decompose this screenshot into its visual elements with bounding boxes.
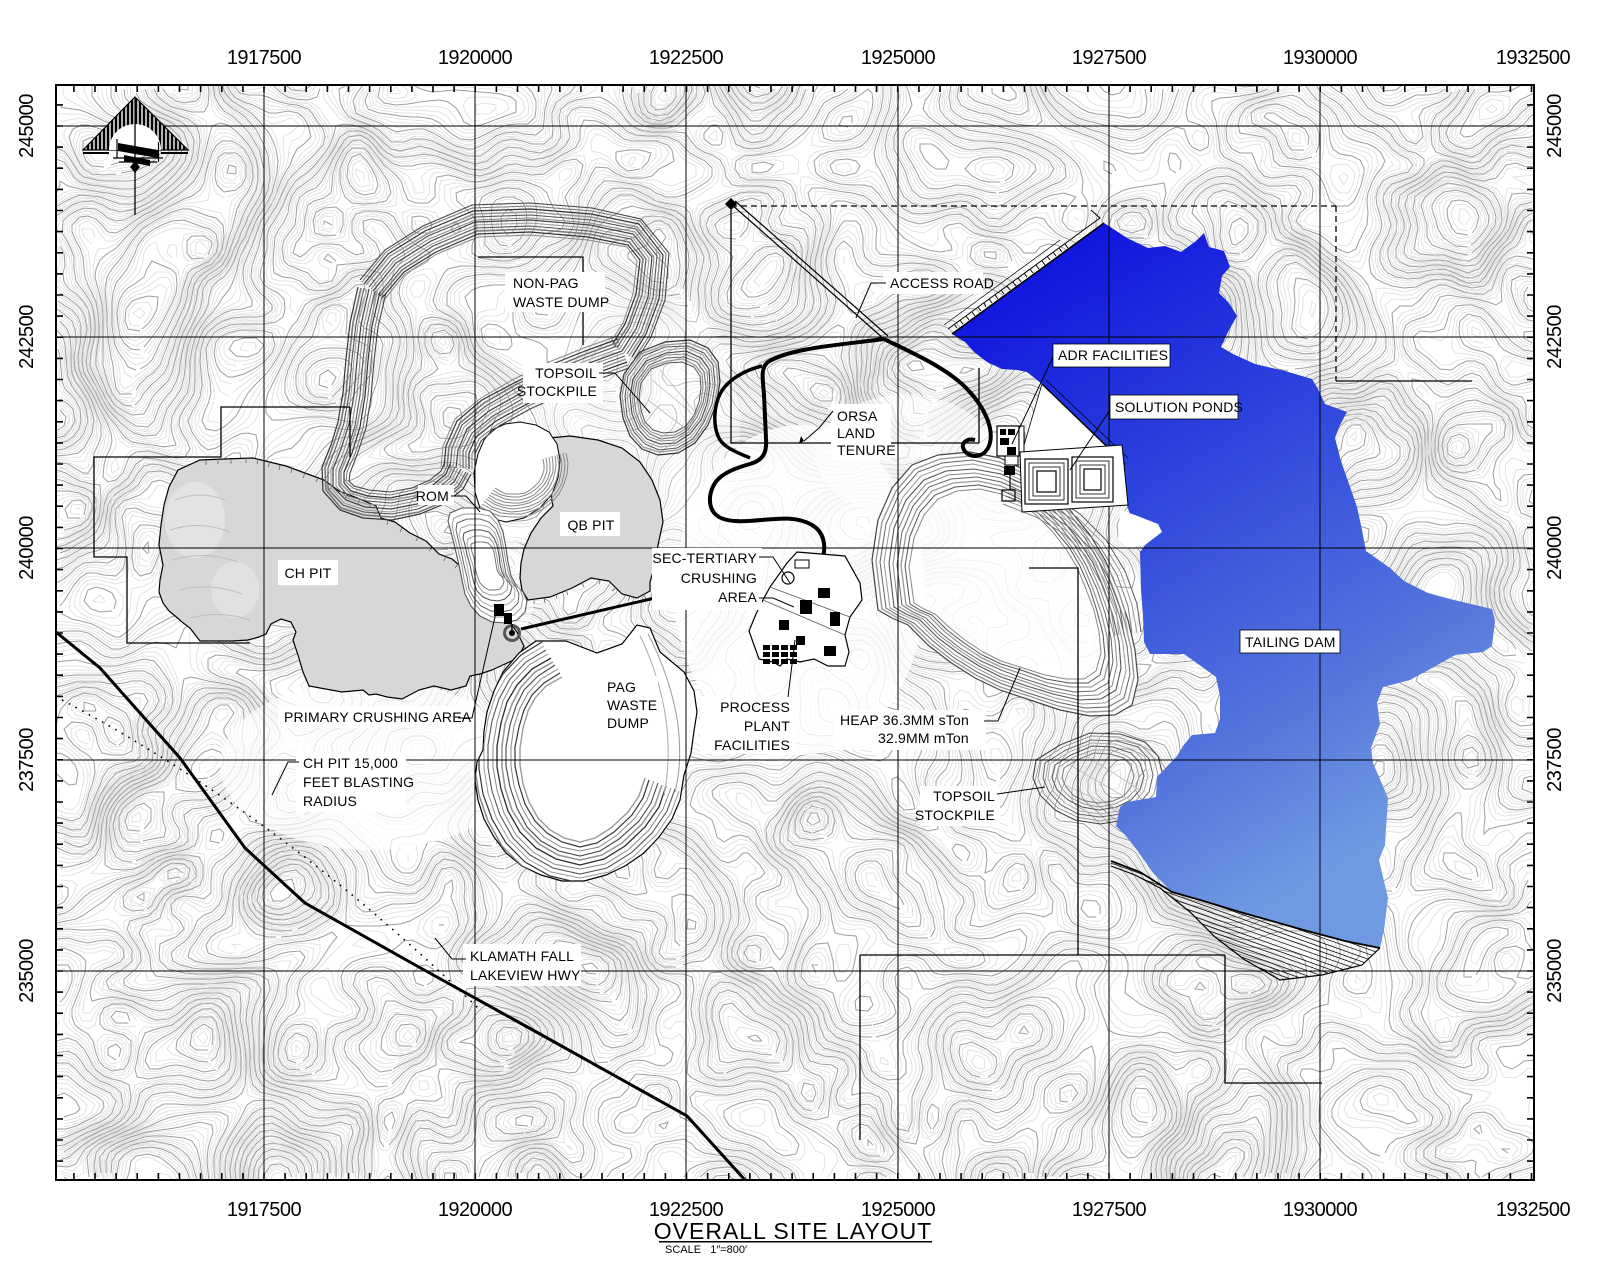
svg-text:1927500: 1927500 — [1072, 1199, 1147, 1221]
svg-text:LAND: LAND — [837, 425, 875, 441]
svg-text:KLAMATH FALL: KLAMATH FALL — [470, 948, 574, 964]
svg-text:1927500: 1927500 — [1072, 47, 1147, 69]
svg-text:RADIUS: RADIUS — [303, 793, 357, 809]
svg-text:WASTE: WASTE — [607, 697, 657, 713]
svg-text:1930000: 1930000 — [1283, 1199, 1358, 1221]
svg-text:1917500: 1917500 — [227, 47, 302, 69]
svg-text:SOLUTION PONDS: SOLUTION PONDS — [1115, 399, 1243, 415]
svg-text:245000: 245000 — [16, 94, 38, 158]
svg-text:ADR FACILITIES: ADR FACILITIES — [1058, 347, 1168, 363]
svg-text:ROM: ROM — [416, 488, 449, 504]
svg-text:WASTE DUMP: WASTE DUMP — [513, 294, 609, 310]
svg-text:QB PIT: QB PIT — [567, 517, 614, 533]
svg-text:OVERALL SITE LAYOUT: OVERALL SITE LAYOUT — [654, 1218, 932, 1244]
svg-text:1922500: 1922500 — [649, 47, 724, 69]
svg-text:PROCESS: PROCESS — [720, 699, 790, 715]
svg-text:CH PIT 15,000: CH PIT 15,000 — [303, 755, 398, 771]
svg-text:1925000: 1925000 — [861, 47, 936, 69]
svg-text:TAILING DAM: TAILING DAM — [1245, 634, 1336, 650]
svg-text:TOPSOIL: TOPSOIL — [933, 788, 995, 804]
svg-text:STOCKPILE: STOCKPILE — [915, 807, 995, 823]
svg-text:FEET BLASTING: FEET BLASTING — [303, 774, 414, 790]
svg-text:LAKEVIEW HWY: LAKEVIEW HWY — [470, 967, 581, 983]
svg-text:1917500: 1917500 — [227, 1199, 302, 1221]
svg-text:242500: 242500 — [16, 305, 38, 369]
svg-text:235000: 235000 — [16, 939, 38, 1003]
svg-text:HEAP 36.3MM sTon: HEAP 36.3MM sTon — [840, 712, 969, 728]
svg-text:PAG: PAG — [607, 679, 636, 695]
svg-text:AREA: AREA — [718, 589, 757, 605]
svg-text:1932500: 1932500 — [1496, 47, 1571, 69]
svg-text:242500: 242500 — [1544, 305, 1566, 369]
svg-text:237500: 237500 — [16, 728, 38, 792]
svg-text:FACILITIES: FACILITIES — [714, 737, 790, 753]
svg-text:240000: 240000 — [1544, 516, 1566, 580]
svg-text:PLANT: PLANT — [744, 718, 790, 734]
svg-text:1920000: 1920000 — [438, 47, 513, 69]
svg-text:1920000: 1920000 — [438, 1199, 513, 1221]
svg-text:237500: 237500 — [1544, 728, 1566, 792]
svg-text:ORSA: ORSA — [837, 408, 878, 424]
svg-text:SEC-TERTIARY: SEC-TERTIARY — [652, 550, 757, 566]
svg-text:NON-PAG: NON-PAG — [513, 275, 579, 291]
svg-text:235000: 235000 — [1544, 939, 1566, 1003]
svg-text:32.9MM mTon: 32.9MM mTon — [878, 730, 969, 746]
svg-text:1932500: 1932500 — [1496, 1199, 1571, 1221]
svg-text:TOPSOIL: TOPSOIL — [535, 365, 597, 381]
svg-text:CH PIT: CH PIT — [284, 565, 331, 581]
svg-text:245000: 245000 — [1544, 94, 1566, 158]
svg-text:240000: 240000 — [16, 516, 38, 580]
svg-text:TENURE: TENURE — [837, 442, 896, 458]
svg-text:STOCKPILE: STOCKPILE — [517, 383, 597, 399]
svg-text:ACCESS ROAD: ACCESS ROAD — [890, 275, 994, 291]
svg-text:PRIMARY CRUSHING AREA: PRIMARY CRUSHING AREA — [284, 709, 472, 725]
svg-text:1930000: 1930000 — [1283, 47, 1358, 69]
svg-text:CRUSHING: CRUSHING — [681, 570, 757, 586]
svg-text:SCALE 1″=800′: SCALE 1″=800′ — [665, 1244, 747, 1256]
svg-text:DUMP: DUMP — [607, 715, 649, 731]
